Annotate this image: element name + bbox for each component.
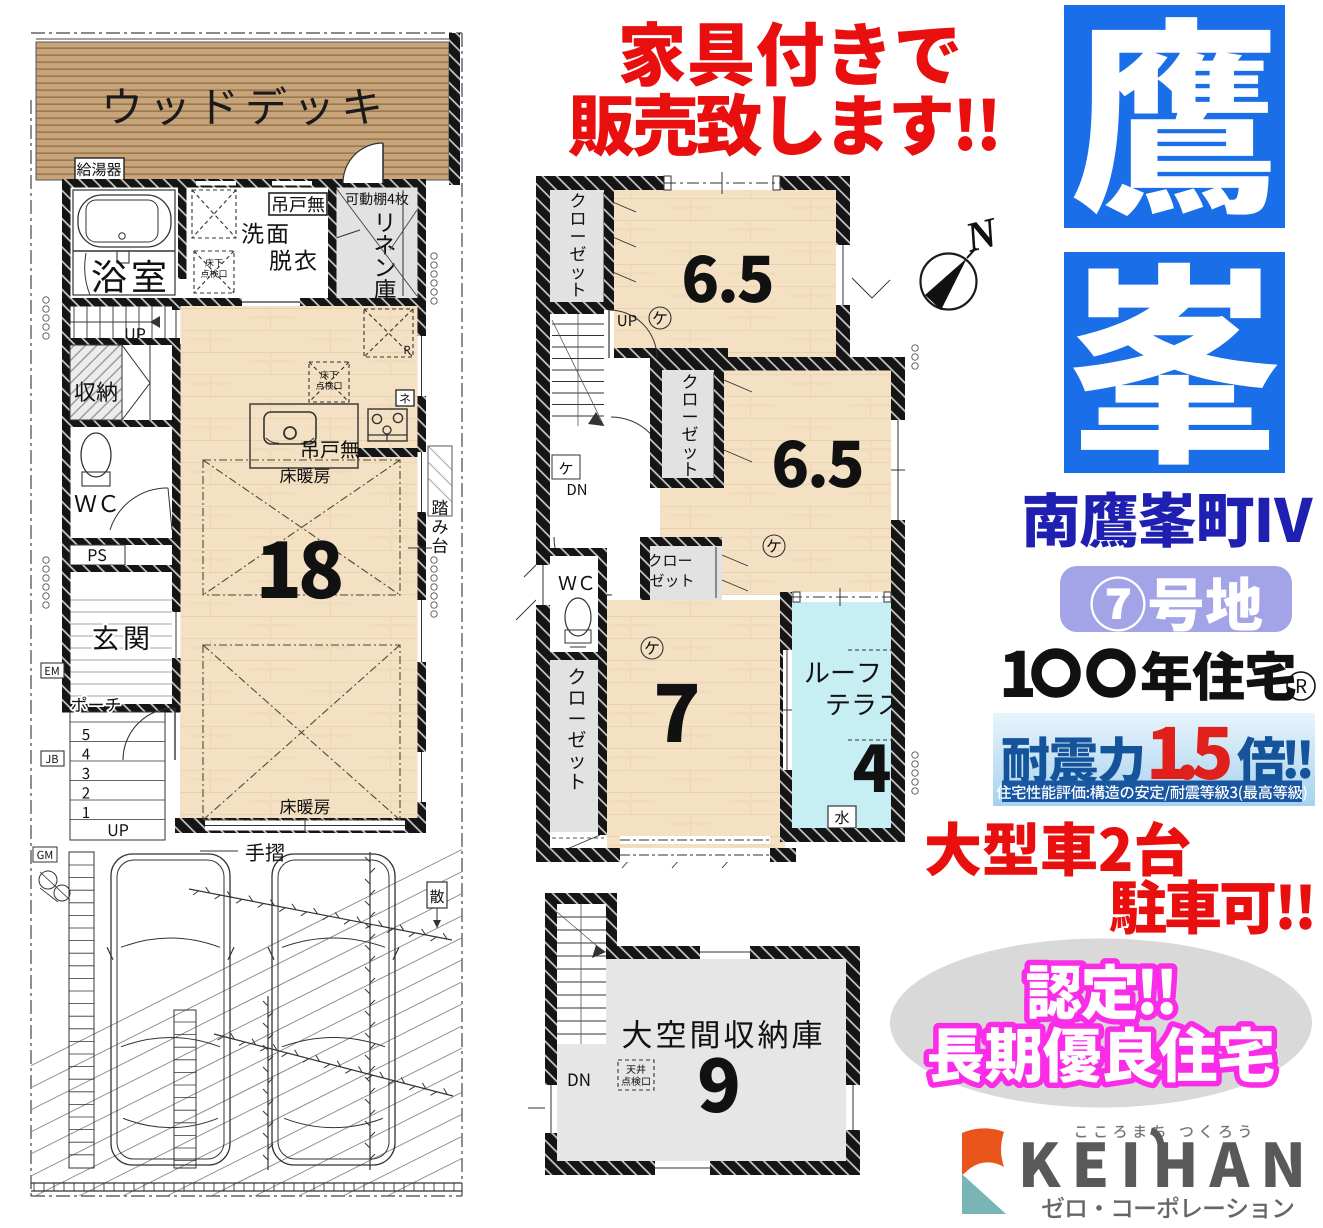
svg-text:N: N: [960, 209, 1003, 262]
